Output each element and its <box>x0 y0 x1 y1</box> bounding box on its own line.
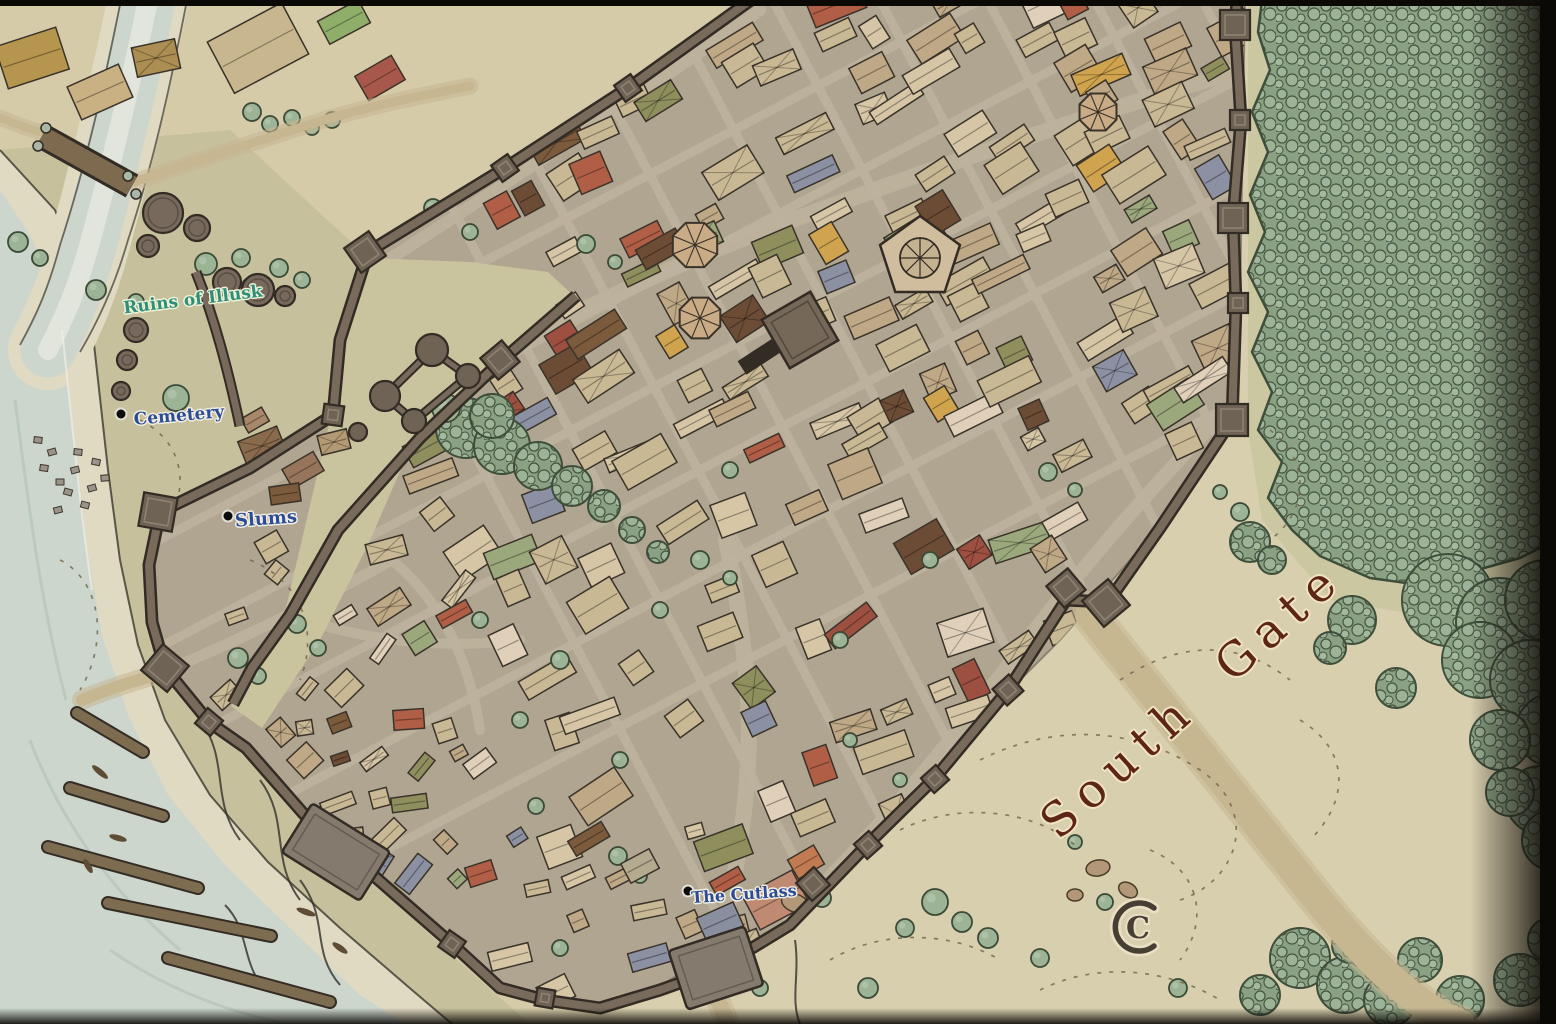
map-viewport: C Ruins of IlluskCemeterySlumsThe Cutlas… <box>0 0 1556 1024</box>
the-cutlass-marker <box>682 885 695 898</box>
cemetery-marker <box>115 408 128 421</box>
slums-marker <box>222 510 235 523</box>
copyright-mark: C <box>1126 911 1150 946</box>
